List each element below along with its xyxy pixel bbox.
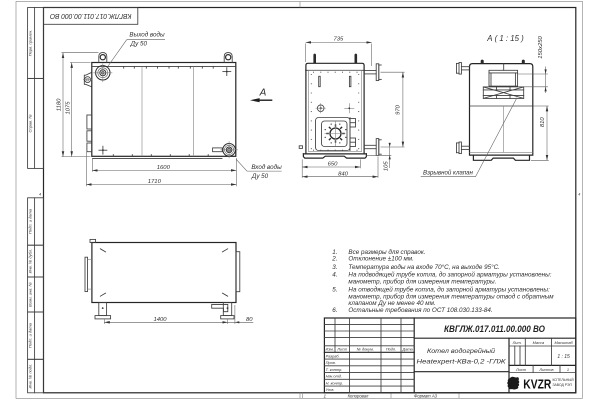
svg-text:1: 1 <box>324 393 326 398</box>
svg-text:Копировал: Копировал <box>348 393 369 398</box>
svg-text:А: А <box>259 88 267 99</box>
svg-text:Листов: Листов <box>538 367 553 372</box>
svg-text:1600: 1600 <box>157 165 171 171</box>
svg-text:Н. контр.: Н. контр. <box>326 380 344 385</box>
svg-text:4.: 4. <box>332 271 337 278</box>
svg-text:На подводящей трубе котла, до: На подводящей трубе котла, до запорной а… <box>348 270 551 278</box>
svg-text:Т. контр.: Т. контр. <box>326 367 343 372</box>
svg-text:970: 970 <box>396 104 402 115</box>
svg-text:80: 80 <box>246 317 253 323</box>
svg-text:Формат А3: Формат А3 <box>414 393 438 398</box>
svg-text:Масса: Масса <box>533 340 545 345</box>
svg-text:Разраб.: Разраб. <box>326 353 340 358</box>
svg-text:105: 105 <box>383 161 389 172</box>
svg-text:Инв. № дубл.: Инв. № дубл. <box>27 249 32 274</box>
svg-text:КВГЛЖ.017.011.00.000 ВО: КВГЛЖ.017.011.00.000 ВО <box>50 12 132 21</box>
svg-text:Ду 50: Ду 50 <box>130 40 148 47</box>
svg-text:Утв.: Утв. <box>326 387 335 392</box>
svg-text:5.: 5. <box>332 286 337 293</box>
svg-text:клапаном Ду не менее 40 мм.: клапаном Ду не менее 40 мм. <box>348 300 435 307</box>
svg-text:Справ. №: Справ. № <box>27 114 32 133</box>
svg-text:Лист: Лист <box>336 346 348 351</box>
svg-text:4: 4 <box>578 193 580 197</box>
svg-text:Пров.: Пров. <box>326 360 336 365</box>
svg-text:6.: 6. <box>332 307 337 314</box>
svg-text:3.: 3. <box>332 264 337 271</box>
svg-text:1 : 15: 1 : 15 <box>557 354 570 360</box>
svg-text:манометр, прибор для измерения: манометр, прибор для измерения температу… <box>348 277 496 285</box>
svg-text:150x250: 150x250 <box>538 35 544 58</box>
svg-text:Подп. и дата: Подп. и дата <box>27 208 32 234</box>
svg-text:2.: 2. <box>331 256 337 263</box>
svg-text:650: 650 <box>328 162 339 168</box>
svg-text:Лист: Лист <box>515 367 527 372</box>
svg-text:Взрывной клапан: Взрывной клапан <box>423 169 474 176</box>
svg-text:№ докум.: № докум. <box>357 346 374 351</box>
svg-text:КОТЕЛЬНЫЙ: КОТЕЛЬНЫЙ <box>553 378 575 382</box>
svg-text:Отклонение ±100 мм.: Отклонение ±100 мм. <box>348 256 413 263</box>
svg-text:Heatexpert-КВа-0,2 -ГЛЖ: Heatexpert-КВа-0,2 -ГЛЖ <box>417 358 507 365</box>
svg-text:1: 1 <box>567 367 569 372</box>
svg-text:Котел водогрейный: Котел водогрейный <box>427 347 495 355</box>
svg-text:840: 840 <box>338 171 349 177</box>
svg-text:4: 4 <box>39 193 41 197</box>
svg-text:735: 735 <box>333 37 344 43</box>
svg-text:Выход воды: Выход воды <box>129 31 165 38</box>
svg-text:На отводящей трубе котла, до з: На отводящей трубе котла, до запорной ар… <box>348 285 550 293</box>
svg-text:ЗАВОД РЭП: ЗАВОД РЭП <box>553 383 573 387</box>
svg-text:Вход воды: Вход воды <box>251 164 282 171</box>
svg-text:1075: 1075 <box>65 101 71 115</box>
svg-text:Взам. инв. №: Взам. инв. № <box>27 281 32 306</box>
svg-text:Перв. примен.: Перв. примен. <box>27 30 32 57</box>
svg-text:Дата: Дата <box>401 346 413 351</box>
svg-text:КВГЛЖ.017.011.00.000 ВО: КВГЛЖ.017.011.00.000 ВО <box>444 324 545 334</box>
svg-text:1180: 1180 <box>57 98 63 111</box>
svg-text:Температура воды на входе 70°С: Температура воды на входе 70°С, на выход… <box>348 263 500 271</box>
svg-text:А ( 1 : 15 ): А ( 1 : 15 ) <box>486 34 524 43</box>
svg-text:Лит.: Лит. <box>512 340 522 345</box>
svg-text:Ду 50: Ду 50 <box>251 173 269 180</box>
svg-text:KVZR: KVZR <box>523 378 551 392</box>
svg-text:Подп.: Подп. <box>386 346 396 351</box>
svg-text:Масштаб: Масштаб <box>555 340 574 345</box>
svg-text:Изм.: Изм. <box>326 346 334 351</box>
svg-text:Подп. и дата: Подп. и дата <box>27 322 32 348</box>
svg-text:1710: 1710 <box>148 179 162 185</box>
svg-text:Нач.отд.: Нач.отд. <box>326 374 342 379</box>
svg-text:1400: 1400 <box>153 317 167 323</box>
svg-text:810: 810 <box>540 117 546 128</box>
svg-text:Остальные требования по ОСТ 10: Остальные требования по ОСТ 108.030.133-… <box>348 306 492 314</box>
svg-text:Инв. № подл.: Инв. № подл. <box>27 364 32 389</box>
